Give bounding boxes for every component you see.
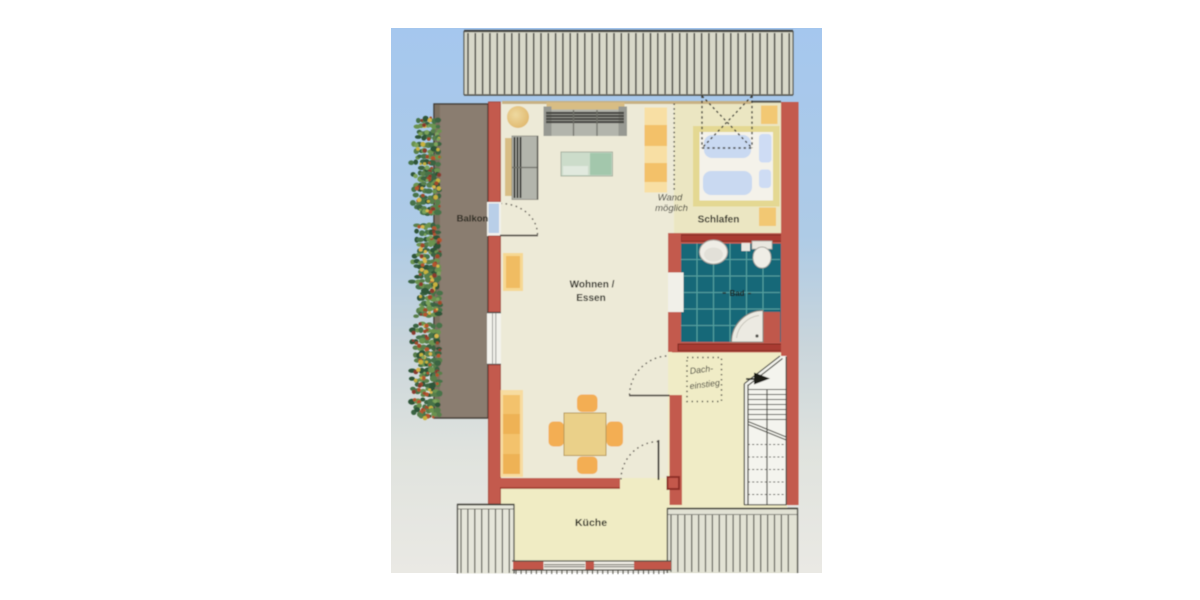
svg-text:Bad: Bad xyxy=(729,289,744,298)
svg-text:Essen: Essen xyxy=(576,293,605,304)
svg-text:Wand: Wand xyxy=(658,193,683,204)
svg-text:Wohnen /: Wohnen / xyxy=(570,280,615,291)
svg-text:möglich: möglich xyxy=(655,203,688,214)
svg-text:Balkon: Balkon xyxy=(457,214,489,225)
svg-text:Küche: Küche xyxy=(575,517,607,529)
svg-text:Schlafen: Schlafen xyxy=(698,215,740,226)
